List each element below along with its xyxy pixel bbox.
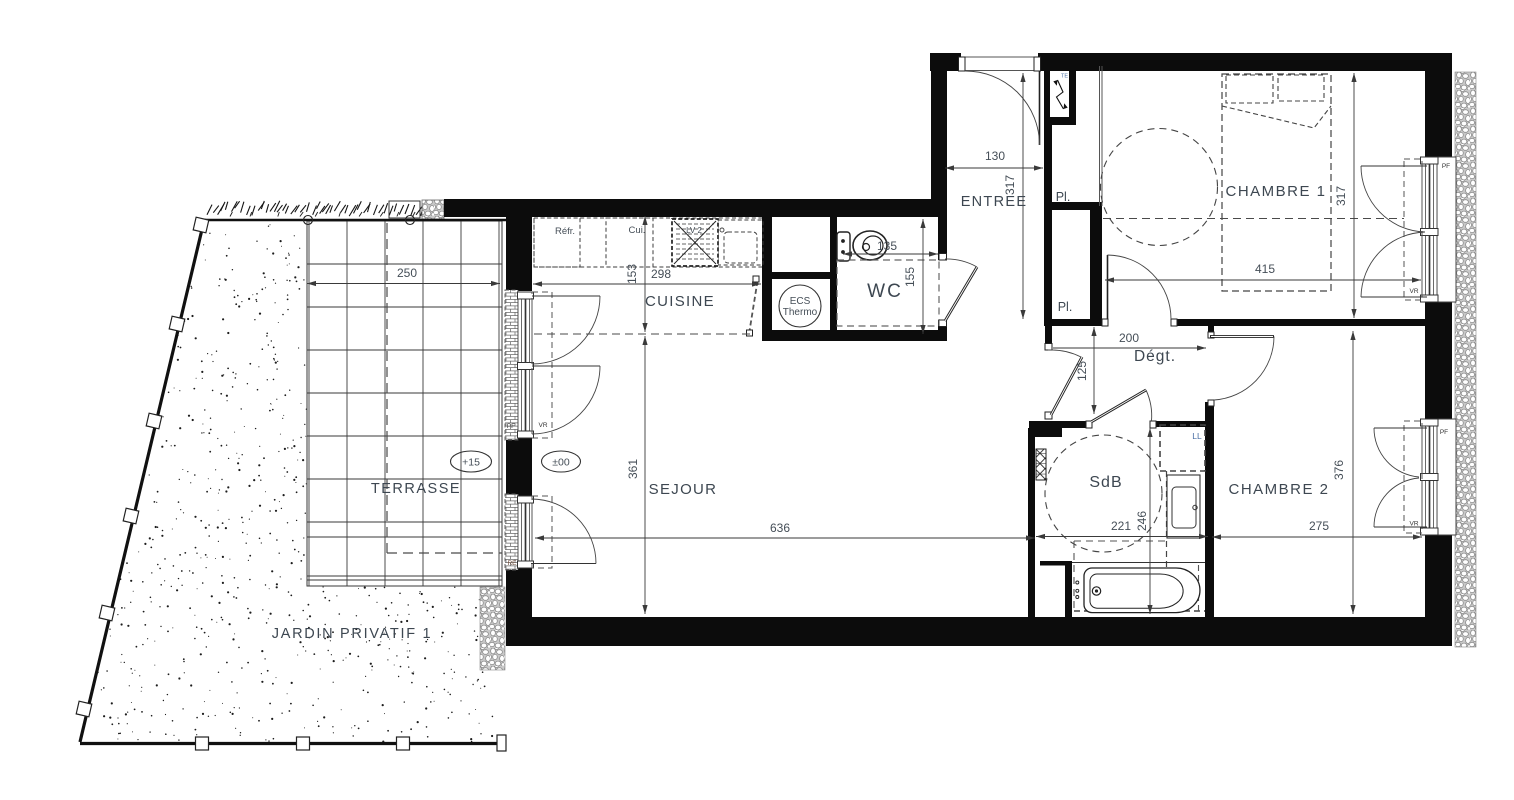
svg-text:ECS: ECS (790, 296, 811, 307)
svg-text:125: 125 (1075, 361, 1089, 381)
svg-text:RE: RE (507, 560, 517, 567)
svg-text:250: 250 (397, 266, 417, 280)
svg-text:317: 317 (1003, 175, 1017, 195)
svg-text:275: 275 (1309, 519, 1329, 533)
svg-text:130: 130 (985, 149, 1005, 163)
svg-text:SEJOUR: SEJOUR (649, 481, 718, 498)
svg-text:155: 155 (903, 267, 917, 287)
svg-text:±00: ±00 (552, 457, 570, 469)
svg-text:415: 415 (1255, 262, 1275, 276)
svg-text:PF: PF (1440, 429, 1448, 436)
svg-text:298: 298 (651, 267, 671, 281)
svg-text:Dégt.: Dégt. (1134, 348, 1176, 365)
svg-text:LV 2: LV 2 (686, 226, 702, 235)
svg-text:PF: PF (507, 423, 515, 430)
svg-text:WC: WC (867, 281, 903, 302)
svg-text:VR: VR (1409, 288, 1418, 295)
svg-text:JARDIN PRIVATIF 1: JARDIN PRIVATIF 1 (272, 626, 433, 642)
svg-text:LL: LL (1192, 431, 1202, 441)
svg-text:135: 135 (877, 239, 897, 253)
svg-text:+15: +15 (462, 457, 480, 469)
svg-text:CHAMBRE 2: CHAMBRE 2 (1228, 481, 1329, 498)
svg-text:SdB: SdB (1089, 474, 1122, 491)
svg-text:PF: PF (1442, 163, 1450, 170)
svg-text:636: 636 (770, 521, 790, 535)
svg-text:VR: VR (538, 422, 547, 429)
svg-text:Cui.: Cui. (629, 225, 646, 236)
svg-text:221: 221 (1111, 519, 1131, 533)
svg-text:Pl.: Pl. (1056, 190, 1071, 204)
svg-text:246: 246 (1135, 511, 1149, 531)
svg-text:200: 200 (1119, 331, 1139, 345)
svg-text:ENTREE: ENTREE (961, 194, 1028, 210)
svg-text:Réfr.: Réfr. (555, 226, 575, 237)
svg-text:TERRASSE: TERRASSE (371, 481, 461, 497)
svg-text:153: 153 (625, 264, 639, 284)
svg-text:376: 376 (1332, 460, 1346, 480)
svg-text:Pl.: Pl. (1058, 300, 1073, 314)
svg-text:CUISINE: CUISINE (645, 293, 715, 310)
svg-text:317: 317 (1334, 186, 1348, 206)
svg-text:Thermo: Thermo (783, 307, 818, 318)
svg-text:361: 361 (626, 459, 640, 479)
svg-text:CHAMBRE 1: CHAMBRE 1 (1225, 183, 1326, 200)
svg-text:TE: TE (1061, 74, 1068, 80)
